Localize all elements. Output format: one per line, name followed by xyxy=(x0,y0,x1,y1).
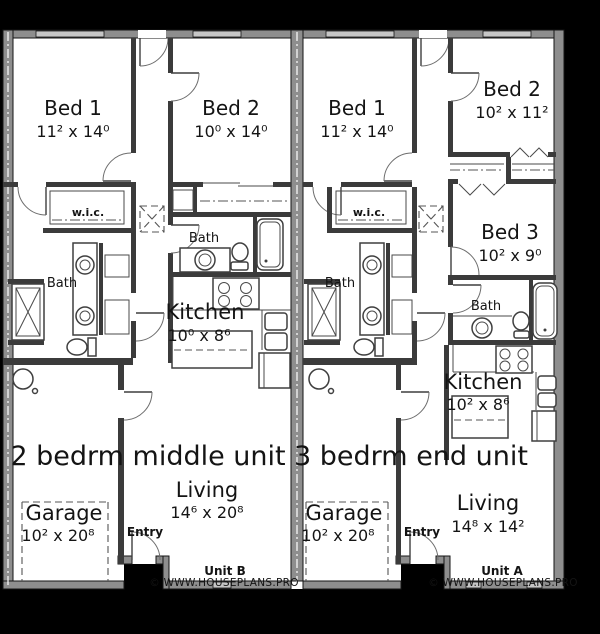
unit-b-entry-label: Entry xyxy=(127,525,163,539)
floor-plan-image: Bed 1 11² x 14⁰ Bed 2 10⁰ x 14⁰ w.i.c. B… xyxy=(0,0,600,634)
toilet-fixture xyxy=(231,243,248,270)
unit-b-bed2-dims: 10⁰ x 14⁰ xyxy=(194,122,267,141)
unit-a-bed1-dims: 11² x 14⁰ xyxy=(320,122,393,141)
unit-a-garage-label: Garage xyxy=(306,501,383,525)
unit-a-copyright: © WWW.HOUSEPLANS.PRO xyxy=(428,577,578,589)
unit-a-bed1-label: Bed 1 xyxy=(328,96,386,120)
unit-a-hall-bath-label: Bath xyxy=(471,299,501,314)
unit-b-title: 2 bedrm middle unit xyxy=(10,441,285,472)
fridge-fixture xyxy=(259,353,290,388)
fridge-fixture xyxy=(532,411,556,441)
unit-a-living-label: Living xyxy=(457,491,519,515)
unit-a-unit-label: Unit A xyxy=(481,564,523,578)
unit-a-bed3-label: Bed 3 xyxy=(481,220,539,244)
shower-fixture xyxy=(12,284,44,340)
double-vanity-fixture xyxy=(360,243,384,335)
unit-a-bed3-dims: 10² x 9⁰ xyxy=(478,246,541,265)
unit-a-kitchen-label: Kitchen xyxy=(444,370,523,394)
toilet-fixture xyxy=(513,312,529,338)
unit-b-master-bath-label: Bath xyxy=(47,276,77,291)
floor-plan-svg: Bed 1 11² x 14⁰ Bed 2 10⁰ x 14⁰ w.i.c. B… xyxy=(0,0,600,634)
toilet-fixture xyxy=(67,338,96,356)
unit-a-living-dims: 14⁸ x 14² xyxy=(451,517,524,536)
unit-a-title: 3 bedrm end unit xyxy=(294,441,528,472)
unit-b-bed2-label: Bed 2 xyxy=(202,96,260,120)
unit-a-wic-label: w.i.c. xyxy=(353,206,385,219)
unit-a-entry-label: Entry xyxy=(404,525,440,539)
unit-a-garage-dims: 10² x 20⁸ xyxy=(301,526,374,545)
unit-b-bed1-label: Bed 1 xyxy=(44,96,102,120)
unit-a-bed2-dims: 10² x 11² xyxy=(475,103,548,122)
unit-b-hall-bath-label: Bath xyxy=(189,231,219,246)
unit-b-kitchen-label: Kitchen xyxy=(166,300,245,324)
shower-fixture xyxy=(308,284,340,340)
stove-fixture xyxy=(496,346,532,373)
unit-b-bed1-dims: 11² x 14⁰ xyxy=(36,122,109,141)
unit-b-kitchen-dims: 10⁰ x 8⁶ xyxy=(167,326,230,345)
tub-fixture xyxy=(257,219,283,270)
tub-fixture xyxy=(533,283,557,339)
unit-a-master-bath-label: Bath xyxy=(325,276,355,291)
unit-a-kitchen-dims: 10² x 8⁶ xyxy=(446,395,509,414)
unit-b-living-label: Living xyxy=(176,478,238,502)
unit-a-bed2-label: Bed 2 xyxy=(483,77,541,101)
toilet-fixture xyxy=(354,338,383,356)
unit-b-unit-label: Unit B xyxy=(204,564,245,578)
unit-b-garage-dims: 10² x 20⁸ xyxy=(21,526,94,545)
unit-b-living-dims: 14⁶ x 20⁸ xyxy=(170,503,243,522)
unit-b-wic-label: w.i.c. xyxy=(72,206,104,219)
unit-b-copyright: © WWW.HOUSEPLANS.PRO xyxy=(149,577,299,589)
unit-b-garage-label: Garage xyxy=(26,501,103,525)
